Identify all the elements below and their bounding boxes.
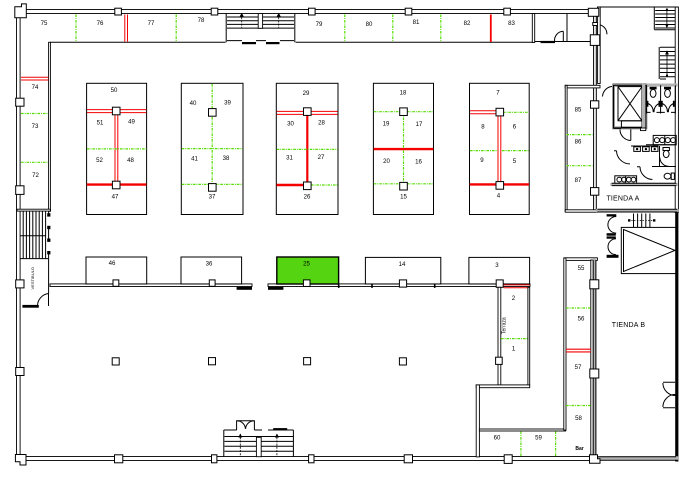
svg-text:26: 26	[304, 193, 311, 200]
svg-text:18: 18	[400, 90, 407, 97]
svg-text:29: 29	[303, 90, 310, 97]
svg-text:28: 28	[318, 120, 325, 127]
svg-text:20: 20	[383, 158, 390, 165]
svg-text:46: 46	[109, 260, 116, 267]
svg-text:86: 86	[575, 139, 582, 146]
svg-text:16: 16	[415, 159, 422, 166]
svg-text:74: 74	[32, 84, 39, 91]
svg-text:81: 81	[413, 19, 420, 26]
svg-text:30: 30	[287, 121, 294, 128]
svg-text:58: 58	[575, 415, 582, 422]
svg-text:59: 59	[535, 435, 542, 442]
svg-text:47: 47	[112, 194, 119, 201]
svg-text:77: 77	[148, 20, 155, 27]
svg-text:60: 60	[494, 435, 501, 442]
svg-text:38: 38	[223, 155, 230, 162]
svg-text:VESTIBULO: VESTIBULO	[30, 267, 35, 289]
svg-text:87: 87	[575, 177, 582, 184]
svg-text:TIENDA A: TIENDA A	[606, 196, 639, 203]
svg-text:55: 55	[578, 265, 585, 272]
svg-text:Bar: Bar	[575, 446, 583, 452]
svg-text:27: 27	[318, 154, 325, 161]
svg-text:39: 39	[224, 100, 231, 107]
svg-text:25: 25	[303, 261, 310, 268]
svg-text:15: 15	[400, 193, 407, 200]
svg-text:85: 85	[575, 107, 582, 114]
svg-text:40: 40	[190, 100, 197, 107]
svg-text:49: 49	[128, 119, 135, 126]
svg-text:31: 31	[286, 155, 293, 162]
svg-text:52: 52	[96, 157, 103, 164]
svg-text:17: 17	[416, 121, 423, 128]
svg-text:14: 14	[399, 261, 406, 268]
svg-text:78: 78	[198, 17, 205, 24]
svg-text:73: 73	[32, 123, 39, 130]
svg-text:50: 50	[111, 87, 118, 94]
svg-text:82: 82	[464, 20, 471, 27]
svg-text:37: 37	[209, 193, 216, 200]
svg-text:48: 48	[127, 157, 134, 164]
svg-text:75: 75	[41, 20, 48, 27]
svg-text:TIENDA B: TIENDA B	[612, 322, 646, 329]
svg-text:56: 56	[578, 316, 585, 323]
svg-text:36: 36	[206, 261, 213, 268]
svg-text:51: 51	[97, 120, 104, 127]
svg-text:83: 83	[508, 20, 515, 27]
svg-text:19: 19	[383, 121, 390, 128]
svg-text:79: 79	[316, 21, 323, 28]
svg-text:Terraza: Terraza	[502, 317, 508, 334]
svg-text:76: 76	[97, 20, 104, 27]
svg-text:57: 57	[575, 364, 582, 371]
svg-text:72: 72	[32, 172, 39, 179]
svg-text:80: 80	[366, 21, 373, 28]
svg-text:41: 41	[191, 156, 198, 163]
svg-text:2: 2	[512, 295, 516, 302]
